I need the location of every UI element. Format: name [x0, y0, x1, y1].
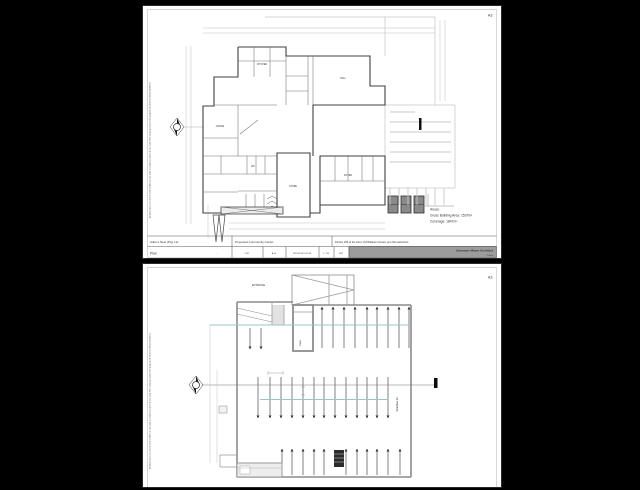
entrance-label: ENTRANCE — [252, 284, 266, 287]
entrance-ramp — [213, 207, 283, 242]
dimension-lines — [268, 371, 305, 395]
areas-gross: Gross Building Area: 1537m² — [430, 214, 473, 218]
roof-plant-area — [272, 305, 284, 325]
ramp-lines — [237, 308, 272, 322]
areas-coverage: Coverage: 1847m² — [430, 220, 458, 224]
room-labels: HALL KITCHEN STORE OFFICE WC FOYER — [216, 64, 353, 188]
porch — [237, 463, 282, 477]
note-block — [334, 450, 344, 467]
sheet-roof-plan: A3 All dimensions and levels to be verif… — [143, 264, 501, 487]
scale-bar — [419, 118, 422, 130]
room-label-foyer: FOYER — [344, 175, 352, 177]
architect-name: Johannes Meyer Architect — [456, 249, 493, 253]
sheet-floor-plan: A3 All dimensions and levels to be verif… — [143, 6, 501, 258]
drawing-number: A-01 — [272, 252, 277, 255]
stair-shaft: STAIR — [293, 305, 313, 351]
internal-partitions — [203, 47, 385, 213]
site-description: Portion 296 of the Farm Vyf Brakken Font… — [335, 240, 409, 244]
room-label-kitchen: KITCHEN — [257, 64, 267, 66]
drawing-title: Plan — [150, 252, 157, 256]
roof-plan-drawing: A3 All dimensions and levels to be verif… — [143, 264, 501, 487]
project-number: 0101 — [245, 253, 250, 255]
room-label-office: OFFICE — [216, 126, 225, 128]
scale-value: 1 : 250 — [323, 253, 330, 255]
checked-by: - — [217, 253, 218, 255]
north-arrow-icon — [189, 376, 203, 394]
stage-code: SDP — [339, 253, 344, 255]
room-label-store: STORE — [289, 186, 297, 188]
floor-plan-drawing: A3 All dimensions and levels to be verif… — [143, 6, 501, 258]
date-time: 2022/02/18 13:35:38 — [293, 253, 312, 255]
entrance-canopy — [292, 275, 354, 305]
viewer-background: A3 All dimensions and levels to be verif… — [0, 0, 640, 490]
project-name: Proposed Community Center — [235, 240, 274, 244]
disclaimer-vertical-text: All dimensions and levels to be verified… — [149, 333, 152, 469]
building-outer-walls — [203, 47, 385, 217]
parking-bays — [390, 112, 451, 205]
room-label-wc: WC — [251, 166, 255, 168]
site-boundary-lines — [210, 324, 237, 467]
client-name: Adler's Nest (Pty) Ltd — [150, 240, 179, 244]
stair-label: STAIR — [299, 340, 302, 346]
disclaimer-vertical-text: All dimensions and levels to be verified… — [149, 82, 152, 218]
paper-size-label: A3 — [488, 14, 493, 18]
scale-bar — [434, 378, 438, 388]
areas-note: Areas: Gross Building Area: 1537m² Cover… — [421, 194, 473, 224]
roof-arrows-middle — [258, 377, 388, 418]
outbuilding-units — [388, 196, 424, 213]
paper-size-label: A3 — [488, 276, 493, 280]
title-block: Adler's Nest (Pty) Ltd Proposed Communit… — [148, 236, 497, 258]
road-label: Hartenbos Rd — [396, 397, 399, 412]
north-arrow-icon — [170, 118, 203, 136]
room-label-hall: HALL — [340, 77, 346, 80]
areas-label: Areas: — [430, 208, 440, 212]
architect-subtext: Pr. Arch — [487, 254, 493, 257]
